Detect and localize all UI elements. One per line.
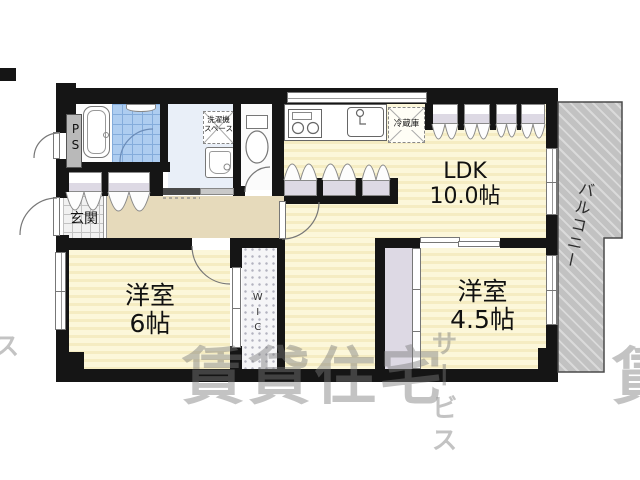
toilet-tank xyxy=(246,115,268,129)
closet-box xyxy=(521,104,545,124)
wall-right-a xyxy=(546,88,558,148)
stove-grill xyxy=(292,112,312,120)
wall-hall-south xyxy=(56,238,192,250)
sliding-door-bedroom45-north-1 xyxy=(420,237,460,243)
ldk-door-leaf xyxy=(279,201,286,239)
wall-topcloset-sep3 xyxy=(517,104,521,130)
fridge-label: 冷蔵庫 xyxy=(389,120,424,130)
wall-closet45-north xyxy=(375,238,420,248)
storage-box xyxy=(362,180,390,196)
ps-door-leaf xyxy=(53,132,60,159)
ldk-name: LDK xyxy=(400,160,530,185)
wall-closet-east-block xyxy=(150,168,163,196)
washbasin-bowl xyxy=(209,151,231,174)
wall-washroom-door-post xyxy=(233,186,245,196)
bedroom6-name: 洋室 xyxy=(95,282,205,310)
closet-box xyxy=(432,104,458,124)
watermark-edge-left: ス xyxy=(0,332,23,358)
kitchen-sink xyxy=(347,107,384,137)
closet-box xyxy=(66,172,102,192)
watermark-edge-right: 賃 xyxy=(612,326,640,416)
wall-pillar-bottomright xyxy=(538,348,558,382)
wall-topcloset-sep2 xyxy=(490,104,496,130)
entrance-door-leaf xyxy=(53,197,60,236)
bathtub xyxy=(83,106,110,158)
washroom-sliding-door-panel xyxy=(163,188,200,195)
wall-kstorage-south xyxy=(284,196,398,204)
wall-topcloset-sep1 xyxy=(458,104,464,130)
wall-toilet-kitchen xyxy=(272,104,284,196)
sliding-door-bedroom45-north-2 xyxy=(458,241,500,247)
storage-box xyxy=(284,180,317,196)
bedroom45-name: 洋室 xyxy=(425,278,540,306)
washroom-sliding-door-track xyxy=(200,188,234,195)
entrance-label: 玄関 xyxy=(64,212,104,228)
washer-label: 洗濯機 スペース xyxy=(201,115,236,133)
wall-topcloset-sep0 xyxy=(425,104,433,130)
closet-box xyxy=(108,172,150,192)
washbasin xyxy=(205,147,235,178)
shower-shelf xyxy=(126,104,156,112)
wall-ldk-45-east xyxy=(500,238,546,248)
wall-closet-sep-north xyxy=(102,170,108,196)
floor-shower-tiles xyxy=(112,104,160,162)
window-bedroom45-balcony xyxy=(546,255,557,325)
watermark-main: 賃貸住宅 xyxy=(182,326,446,416)
ldk-size: 10.0帖 xyxy=(400,185,530,210)
ps-label: PS xyxy=(68,122,81,154)
stove xyxy=(288,109,322,138)
storage-box xyxy=(322,180,356,196)
wall-bath-washroom xyxy=(160,104,168,164)
window-bedroom6-west xyxy=(55,252,66,330)
room-label-ldk: LDK 10.0帖 xyxy=(400,160,530,209)
watermark-sub: サービス xyxy=(424,330,461,458)
bathtub-inner xyxy=(87,110,106,154)
closet-box xyxy=(464,104,490,124)
entrance-door-arc xyxy=(20,198,57,235)
wall-stub-topleft xyxy=(0,68,16,81)
wall-right-b xyxy=(546,215,558,255)
floor-hallway xyxy=(104,196,284,238)
closet-box xyxy=(496,104,517,124)
washer-line1: 洗濯機 xyxy=(201,115,236,124)
wall-wic-west-a xyxy=(230,246,242,268)
window-kitchen xyxy=(287,92,427,103)
washer-line2: スペース xyxy=(201,124,236,133)
floorplan: LDK 10.0帖 洋室 6帖 洋室 4.5帖 玄関 WIC PS バルコニー … xyxy=(0,0,640,480)
window-ldk-balcony xyxy=(546,148,557,215)
